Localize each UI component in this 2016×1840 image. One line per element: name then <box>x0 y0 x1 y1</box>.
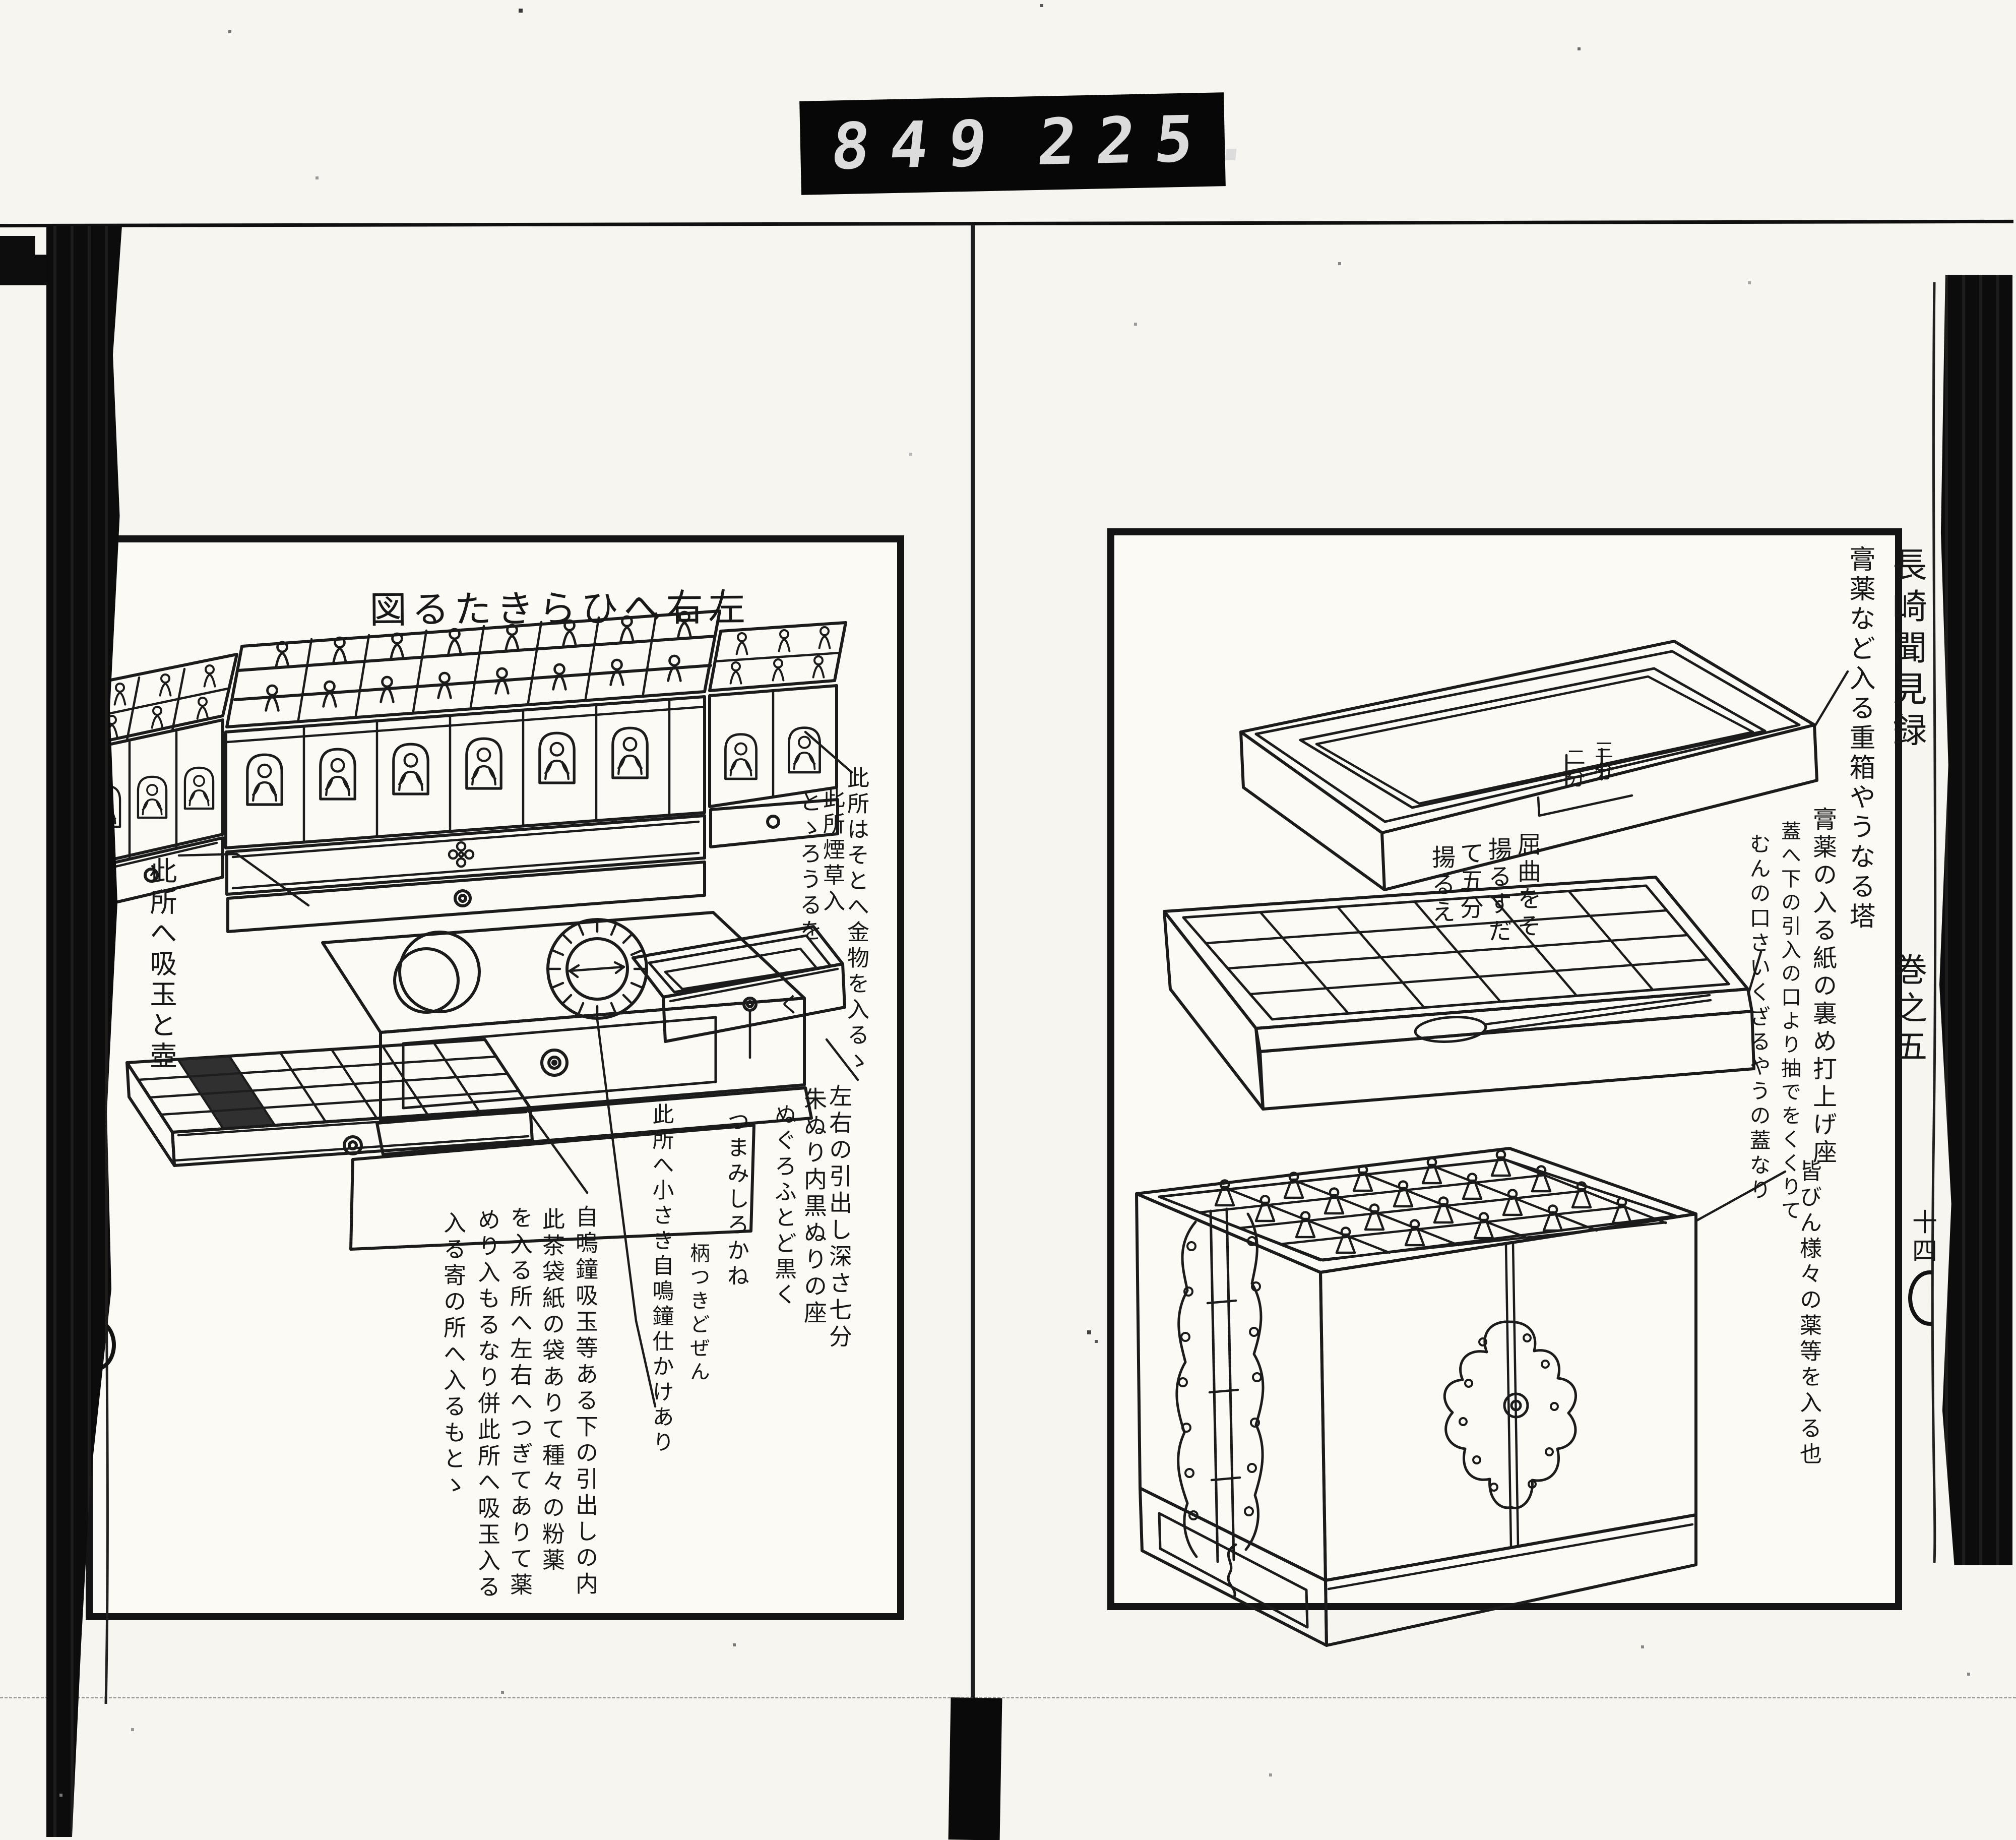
left-page-title: 図るたきらひへ右左 <box>369 577 751 634</box>
lid-dimension-label: 二分 <box>1564 747 1584 789</box>
annotation-column: 左右の引出し深さ七分 <box>828 1084 851 1351</box>
right-margin-book-title: 長崎聞見録 <box>1889 547 1923 754</box>
annotation-column: めり入もるなり併此所へ吸玉入る <box>476 1208 498 1601</box>
lid-dimension-label: 三分 <box>1593 740 1612 782</box>
annotation-column: を入る所へ左右へつぎてありて薬 <box>508 1206 531 1599</box>
lid-note-column: て五分 <box>1458 841 1481 923</box>
annotation-column: とゝろうるを <box>797 790 820 945</box>
lid-note-column: 揚るえ <box>1429 845 1453 927</box>
book-top-edge <box>0 220 2013 227</box>
annotation-column: ぬぐろふとど黒く <box>772 1103 794 1309</box>
annotation-column: つまみしろかね <box>725 1110 747 1290</box>
annotation-column: 自鳴鐘吸玉等ある下の引出しの内 <box>574 1205 596 1598</box>
right-margin-arc-mark <box>1908 1270 1951 1326</box>
annotation-column: 此所へ小さき自鳴鐘仕かけあり <box>650 1103 672 1456</box>
annotation-column: 柄つきどぜん <box>688 1243 708 1385</box>
fold-bottom-tab <box>949 1697 1002 1840</box>
book-bottom-edge <box>0 1697 2016 1698</box>
annotation-column: 此所煙草入 <box>821 786 843 915</box>
figure-caption: 皆びん様々の薬等を入る也 <box>1797 1159 1819 1468</box>
annotation-column: 此所はそとへ金物を入るゝ <box>845 766 867 1075</box>
right-margin-volume: 巻之五 <box>1892 953 1924 1068</box>
annotation-column: 入る寄の所へ入るもとゝ <box>442 1211 464 1499</box>
counter-left-digits: 849 <box>828 106 1011 184</box>
annotation-column: 此茶袋紙の袋ありて種々の粉薬 <box>540 1207 563 1574</box>
right-binding-band <box>1938 275 2012 1565</box>
figure-caption: 膏薬など入る重箱やうなる塔 <box>1847 545 1873 932</box>
right-page-number: 十四 <box>1910 1209 1935 1266</box>
counter-right-digits: 225. <box>1034 100 1275 179</box>
figure-caption: 膏薬の入る紙の裏め打上げ座 <box>1810 807 1835 1167</box>
lid-note-column: 屈曲をそ <box>1515 832 1539 941</box>
figure-caption: むんの口さいくざるやうの蓋なり <box>1748 833 1769 1203</box>
annotation-column: 此所へ吸玉と壺 <box>147 857 174 1072</box>
frame-counter-display: 849 225. <box>800 93 1225 194</box>
annotation-column: 朱ぬり内黒ぬりの座 <box>802 1087 826 1327</box>
scanned-book-spread: 849 225. <box>0 0 2016 1840</box>
centre-fold-line <box>971 225 975 1700</box>
scan-dust-specks <box>0 0 1 1</box>
annotation-column: く <box>776 993 798 1019</box>
lid-note-column: 揚るすだ <box>1486 837 1509 946</box>
